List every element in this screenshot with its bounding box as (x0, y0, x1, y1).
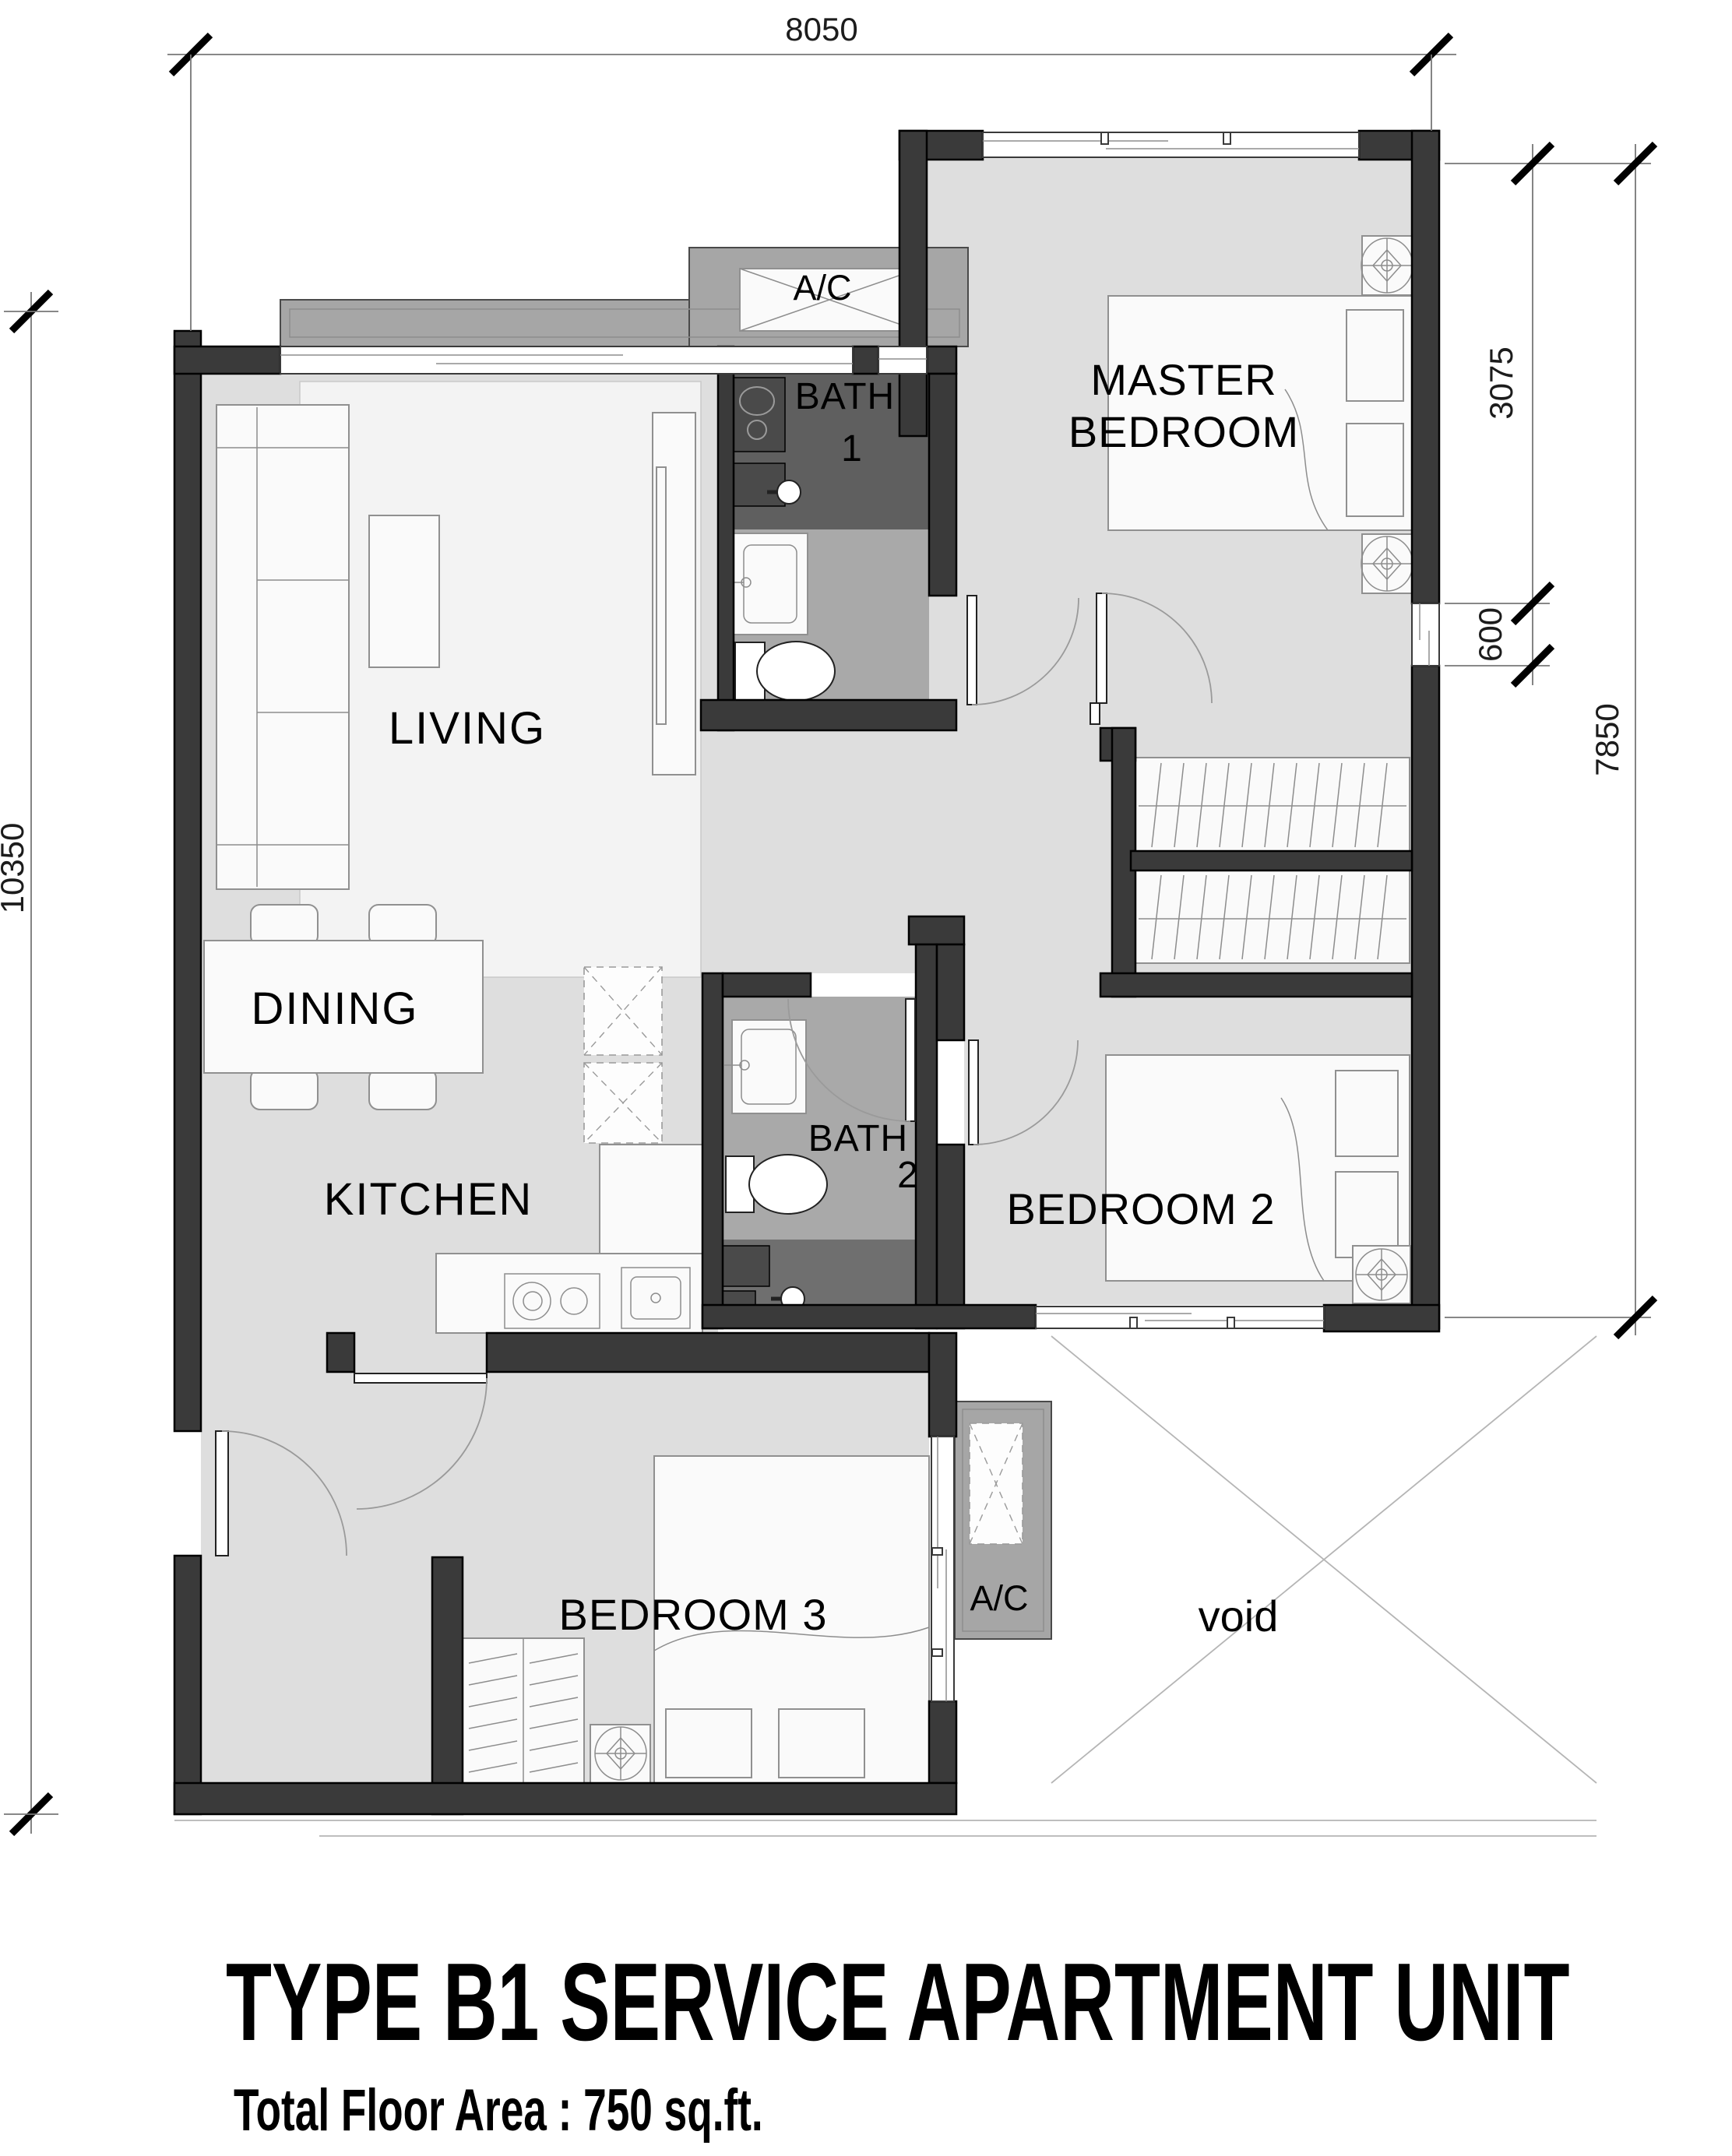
label-bath2-1: BATH (808, 1118, 908, 1159)
wall-right-lower (1412, 666, 1439, 1328)
label-ac-top: A/C (793, 268, 851, 308)
window-mullion-notch (932, 1548, 942, 1555)
bath1-wall-right (929, 374, 956, 596)
lamp-icon (1361, 238, 1413, 293)
bath2-wall-left (702, 973, 723, 1328)
bath2-wall-right (916, 944, 937, 1328)
bedroom3-window (931, 1437, 954, 1701)
living-window (280, 346, 853, 374)
bath1-cabinet (734, 463, 785, 506)
bedroom2-wall-left-lower (937, 1145, 964, 1328)
master-door-leaf (1097, 593, 1107, 703)
dim-right-overall: 7850 (1589, 703, 1625, 776)
bedroom2-wall-left-upper (937, 944, 964, 1040)
plan-subtitle: Total Floor Area : 750 sq.ft. (234, 2077, 763, 2144)
lamp-icon (1356, 1249, 1407, 1300)
dining-chair (369, 905, 436, 945)
plan-title: TYPE B1 SERVICE APARTMENT UNIT (226, 1940, 1570, 2063)
dining-chair (369, 1069, 436, 1110)
tv (657, 467, 666, 724)
bath1-window (878, 346, 927, 374)
label-living: LIVING (389, 703, 546, 754)
window-mullion-notch (1130, 1317, 1137, 1328)
master-window-right (1412, 603, 1439, 666)
bedroom2-wall-bottom-left (702, 1305, 1036, 1328)
bath1-wall-left (718, 346, 734, 730)
bedroom3-wall-top-left (327, 1333, 354, 1372)
wall-window-mullion (853, 346, 878, 374)
master-window-top (983, 132, 1359, 157)
living-rug (300, 382, 701, 977)
shower-head-icon (777, 480, 801, 504)
label-void: void (1199, 1592, 1279, 1641)
bath2-door-leaf (906, 999, 915, 1121)
bath1-wall-bottom (701, 700, 956, 730)
entrance-door-leaf (216, 1431, 228, 1556)
wardrobe-master (1135, 758, 1410, 851)
dim-right-upper: 3075 (1483, 346, 1519, 419)
pillow (1336, 1172, 1398, 1257)
dim-top: 8050 (785, 11, 857, 47)
label-master-2: BEDROOM (1068, 407, 1299, 456)
label-ac-bottom: A/C (970, 1578, 1028, 1618)
pillow (1336, 1071, 1398, 1156)
wardrobe-wall-bottom (1100, 973, 1412, 997)
wall-left-lower (174, 1556, 201, 1814)
dim-right-window: 600 (1472, 607, 1508, 662)
wall-bottom (174, 1783, 956, 1814)
label-bath1-2: 1 (841, 428, 863, 470)
dining-chair (251, 1069, 318, 1110)
window-mullion-notch (1227, 1317, 1234, 1328)
label-bedroom2: BEDROOM 2 (1006, 1184, 1275, 1233)
bath2-wall-top (723, 973, 811, 997)
sofa (216, 405, 349, 889)
kitchen-counter (436, 1254, 702, 1333)
bedroom3-wall-right-lower (929, 1701, 956, 1783)
living-furniture (216, 382, 701, 977)
toilet-bowl (749, 1155, 827, 1214)
lamp-icon (595, 1727, 646, 1780)
bedroom2-wall-bottom-right (1324, 1305, 1439, 1331)
floor-plan-drawing: 8050 10350 3075 600 7850 LIVING MASTER B… (0, 0, 1732, 2156)
bedroom3-wall-top (487, 1333, 929, 1372)
coffee-table (369, 515, 439, 667)
window-mullion-notch (1223, 132, 1230, 144)
pillow (1347, 310, 1403, 401)
window-mullion-notch (932, 1649, 942, 1656)
label-bath2-2: 2 (897, 1155, 919, 1196)
bedroom2-bed-group (1106, 1055, 1410, 1303)
wardrobe-wall-mid (1131, 851, 1412, 870)
toilet-bowl (757, 642, 835, 701)
bath1-door-leaf (967, 596, 977, 705)
master-wall-left (899, 131, 927, 436)
dining-chair (251, 905, 318, 945)
label-bath1-1: BATH (795, 376, 895, 417)
label-dining: DINING (252, 983, 419, 1034)
label-master-1: MASTER (1090, 355, 1276, 404)
dim-left: 10350 (0, 823, 30, 914)
pillow (666, 1709, 752, 1778)
wall-right-upper (1412, 131, 1439, 603)
pillow (1347, 424, 1403, 516)
wall-top-stub2 (927, 346, 956, 374)
bedroom3-wall-right-upper (929, 1333, 956, 1437)
kitchen-counter-side (600, 1145, 702, 1254)
title-block: TYPE B1 SERVICE APARTMENT UNIT Total Flo… (226, 1940, 1570, 2143)
pillow (779, 1709, 864, 1778)
lamp-icon (1361, 536, 1413, 591)
corridor-stub-wall (909, 916, 964, 944)
bedroom2-window (1036, 1307, 1324, 1328)
bedroom3-door-leaf (354, 1373, 487, 1383)
wall-left-upper (174, 331, 201, 1431)
label-bedroom3: BEDROOM 3 (558, 1590, 827, 1639)
bedroom3-wall-left (432, 1557, 463, 1814)
bath2-cabinet (723, 1246, 769, 1286)
door-jamb (1090, 703, 1100, 724)
balcony-ledge (280, 300, 689, 346)
wall-top-stub (174, 346, 280, 374)
bedroom2-door-leaf (969, 1040, 978, 1145)
label-kitchen: KITCHEN (324, 1174, 533, 1225)
window-mullion-notch (1101, 132, 1108, 144)
